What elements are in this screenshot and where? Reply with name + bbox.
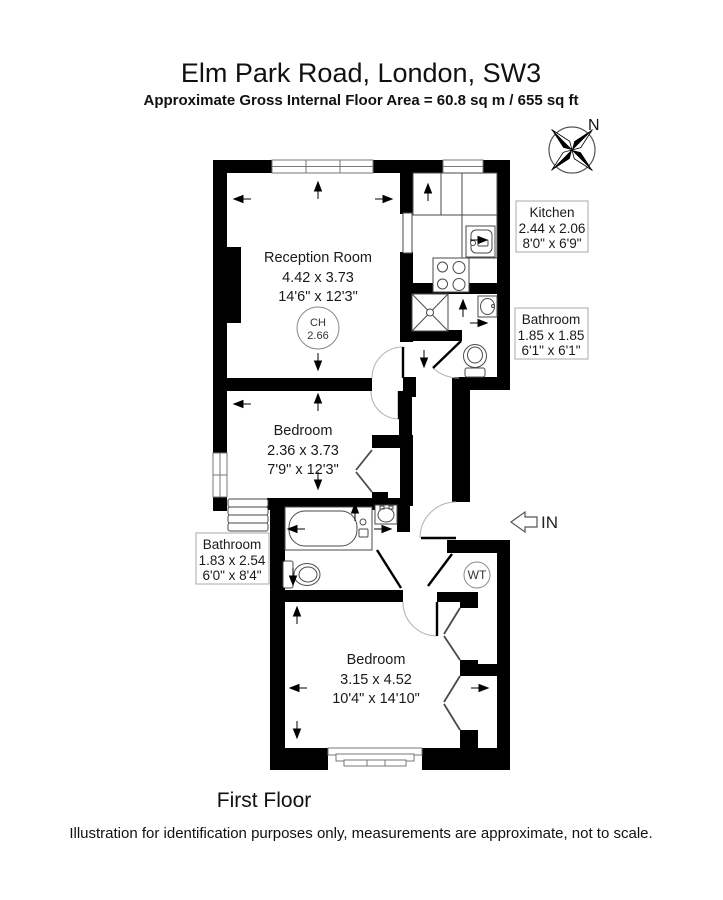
bathroom-top-door: [433, 341, 461, 378]
entrance-door: [420, 502, 456, 538]
svg-text:10'4" x 14'10": 10'4" x 14'10": [332, 691, 420, 707]
shower-icon: [412, 294, 448, 331]
wt-closet-door: [428, 554, 452, 586]
basin-lower-icon: [375, 505, 397, 524]
entrance-arrow-icon: [511, 512, 537, 532]
water-tank-badge: WT: [464, 562, 490, 588]
svg-text:Bedroom: Bedroom: [347, 652, 406, 668]
floorplan-page: Elm Park Road, London, SW3 Approximate G…: [0, 0, 723, 900]
kitchen-label: Kitchen 2.44 x 2.06 8'0" x 6'9": [516, 201, 588, 252]
bedroom-mid-window: [213, 453, 227, 497]
svg-text:7'9" x 12'3": 7'9" x 12'3": [267, 462, 338, 478]
svg-text:Bedroom: Bedroom: [274, 423, 333, 439]
svg-text:Kitchen: Kitchen: [529, 205, 574, 220]
room-labels: Reception Room 4.42 x 3.73 14'6" x 12'3"…: [196, 201, 588, 707]
bathroom-lower-label: Bathroom 1.83 x 2.54 6'0" x 8'4": [196, 533, 269, 584]
svg-text:8'0" x 6'9": 8'0" x 6'9": [522, 236, 581, 251]
bedroom-bottom-label: Bedroom 3.15 x 4.52 10'4" x 14'10": [332, 652, 420, 707]
floorplan-canvas: Elm Park Road, London, SW3 Approximate G…: [0, 0, 723, 900]
svg-text:3.15 x 4.52: 3.15 x 4.52: [340, 672, 412, 688]
svg-text:Bathroom: Bathroom: [522, 312, 581, 327]
svg-text:2.44 x 2.06: 2.44 x 2.06: [519, 221, 586, 236]
svg-text:2.36 x 3.73: 2.36 x 3.73: [267, 443, 339, 459]
svg-text:1.83 x 2.54: 1.83 x 2.54: [199, 553, 266, 568]
bedroom-mid-label: Bedroom 2.36 x 3.73 7'9" x 12'3": [267, 423, 339, 478]
svg-text:CH: CH: [310, 317, 326, 329]
svg-text:6'0" x 8'4": 6'0" x 8'4": [202, 568, 261, 583]
basin-top-icon: [478, 296, 497, 317]
entrance-annotation: IN: [511, 512, 558, 532]
page-title: Elm Park Road, London, SW3: [181, 58, 541, 88]
bedroom-bottom-closet-bifold-doors: [444, 608, 460, 730]
floor-label: First Floor: [217, 789, 312, 812]
svg-text:WT: WT: [468, 568, 487, 582]
reception-room-label: Reception Room 4.42 x 3.73 14'6" x 12'3"…: [264, 250, 372, 349]
bathroom-lower-door: [377, 550, 401, 588]
svg-text:6'1" x 6'1": 6'1" x 6'1": [521, 343, 580, 358]
bathroom-top-label: Bathroom 1.85 x 1.85 6'1" x 6'1": [515, 308, 588, 359]
svg-text:Reception Room: Reception Room: [264, 250, 372, 266]
compass-north-label: N: [588, 117, 600, 134]
toilet-top-icon: [464, 345, 487, 378]
svg-text:1.85 x 1.85: 1.85 x 1.85: [518, 328, 585, 343]
svg-text:IN: IN: [541, 513, 558, 532]
stairs: [228, 499, 268, 531]
compass-icon: N: [549, 117, 600, 173]
svg-text:4.42 x 3.73: 4.42 x 3.73: [282, 270, 354, 286]
svg-text:Bathroom: Bathroom: [203, 537, 262, 552]
kitchen-window: [443, 160, 483, 173]
floor-area-subtitle: Approximate Gross Internal Floor Area = …: [144, 92, 579, 109]
reception-window: [272, 160, 373, 173]
kitchen-door: [403, 213, 412, 253]
bedroom-mid-door: [371, 391, 399, 419]
bedroom-mid-closet-bifold-door: [356, 450, 372, 492]
bedroom-bottom-bay-window: [328, 748, 422, 766]
toilet-lower-icon: [283, 561, 320, 588]
bedroom-bottom-door: [403, 602, 437, 636]
stove-icon: [433, 258, 469, 292]
ceiling-height-badge: CH 2.66: [297, 307, 339, 349]
reception-door: [372, 347, 403, 378]
disclaimer-text: Illustration for identification purposes…: [69, 825, 652, 842]
svg-text:14'6" x 12'3": 14'6" x 12'3": [278, 289, 358, 305]
svg-text:2.66: 2.66: [307, 330, 328, 342]
